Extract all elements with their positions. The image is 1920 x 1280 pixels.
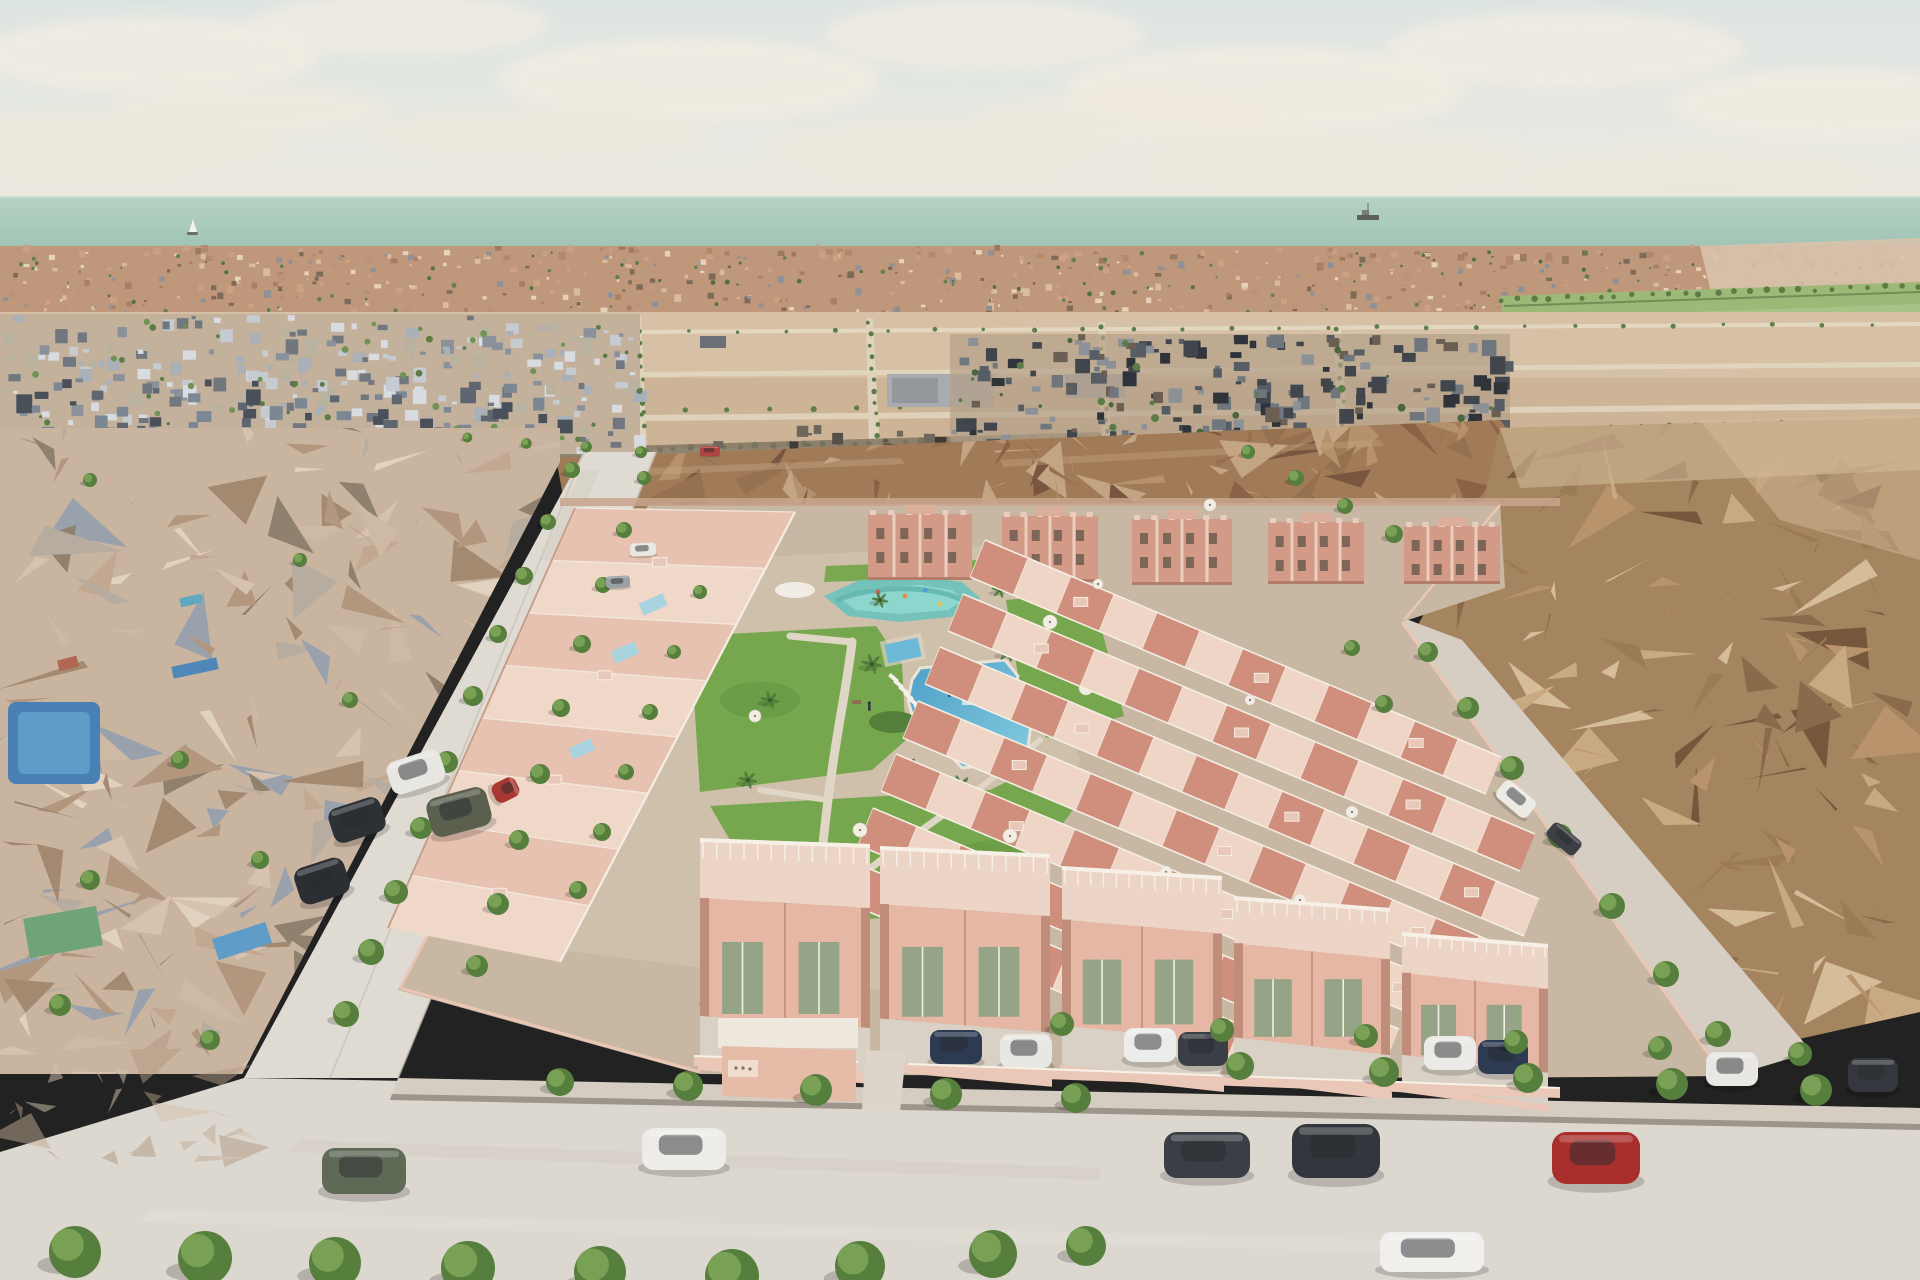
layer-sea xyxy=(0,196,1920,254)
aerial-development-render xyxy=(0,0,1920,1280)
scene-canvas xyxy=(0,0,1920,1280)
layer-sky xyxy=(0,0,1920,207)
